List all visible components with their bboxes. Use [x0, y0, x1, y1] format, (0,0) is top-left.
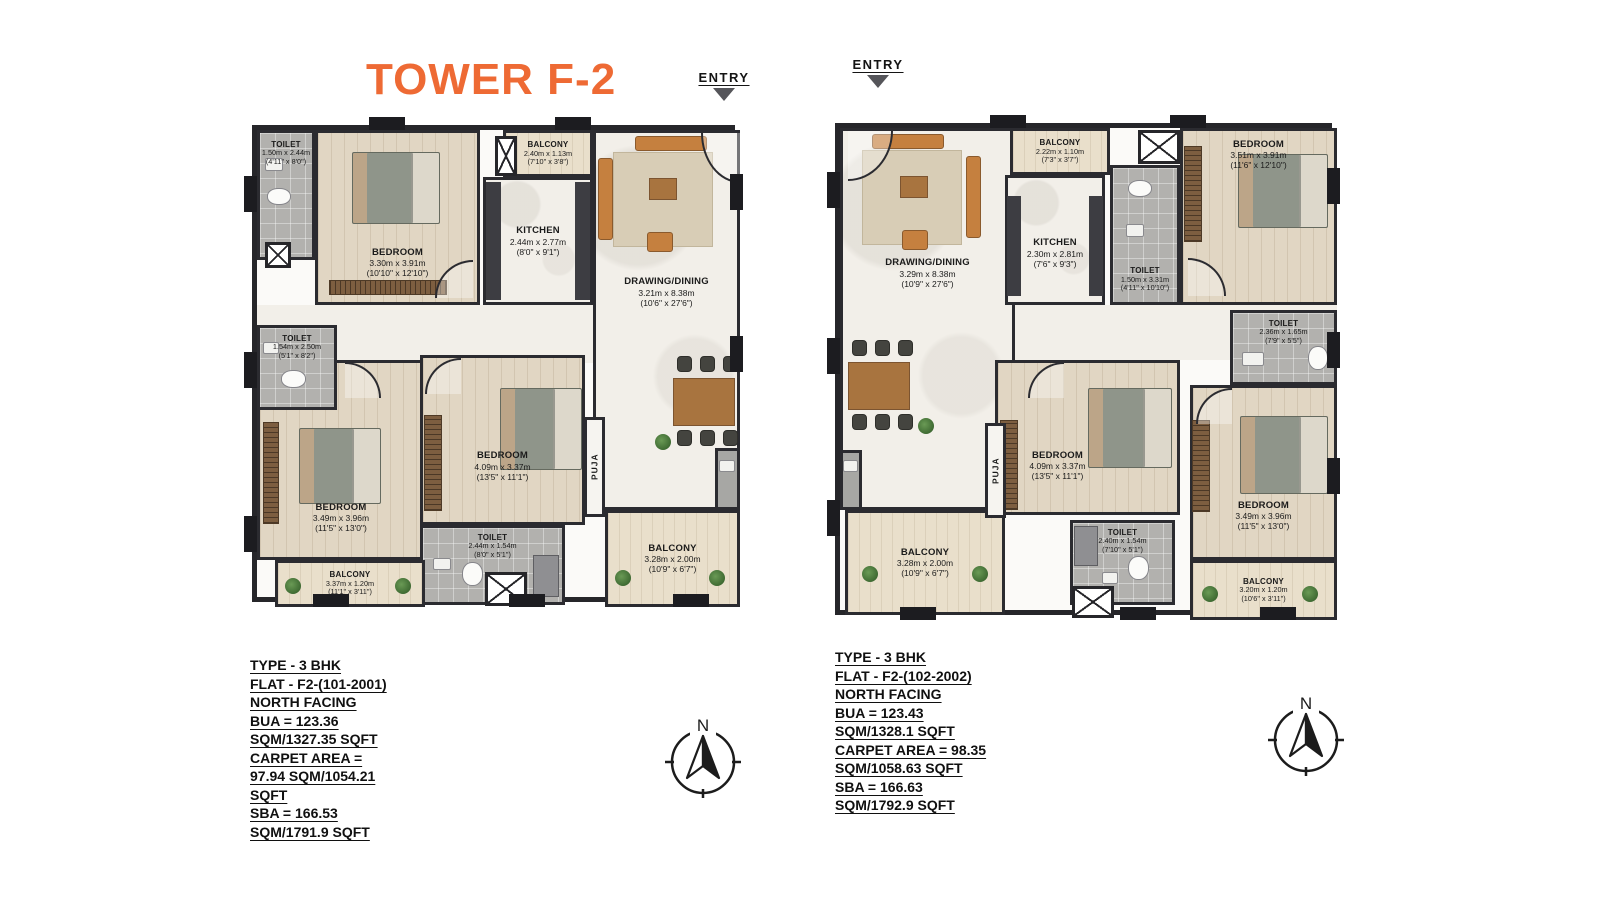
wall-stub	[313, 594, 349, 607]
room-dim-m: 3.49m x 3.96m	[1235, 511, 1291, 521]
compass-icon: N	[1266, 684, 1346, 783]
room-dim-m: 3.49m x 3.96m	[313, 513, 369, 523]
entry-arrow-icon	[713, 88, 735, 101]
room-drawing-dining: DRAWING/DINING 3.29m x 8.38m (10'9" x 27…	[840, 128, 1015, 510]
room-name: KITCHEN	[1033, 237, 1077, 248]
wall-stub	[673, 594, 709, 607]
compass-north-label: N	[1300, 694, 1312, 713]
room-balcony-1: BALCONY 2.40m x 1.13m (7'10" x 3'8")	[503, 130, 593, 177]
room-label: BALCONY 3.28m x 2.00m (10'9" x 6'7")	[848, 513, 1002, 612]
room-dim-ft: (10'9" x 6'7")	[901, 568, 949, 578]
room-kitchen: KITCHEN 2.44m x 2.77m (8'0" x 9'1")	[483, 177, 593, 305]
room-dim-m: 3.28m x 2.00m	[897, 558, 953, 568]
room-dim-ft: (8'0" x 9'1")	[517, 247, 560, 257]
room-name: DRAWING/DINING	[885, 257, 970, 268]
info-line: BUA = 123.43	[835, 706, 986, 721]
wall-stub	[730, 174, 743, 210]
info-line: TYPE - 3 BHK	[250, 658, 387, 673]
room-dim-m: 3.30m x 3.91m	[369, 258, 425, 268]
room-dim-m: 3.21m x 8.38m	[638, 288, 694, 298]
room-dim-m: 3.29m x 8.38m	[899, 269, 955, 279]
entry-label: ENTRY	[696, 70, 752, 85]
room-dim-ft: (7'3" x 3'7")	[1042, 156, 1079, 165]
wall-stub	[827, 500, 840, 536]
room-dim-ft: (10'6" x 27'6")	[640, 298, 692, 308]
room-name: BALCONY	[648, 543, 696, 554]
info-line: SQM/1328.1 SQFT	[835, 724, 986, 739]
unit-spec-left: TYPE - 3 BHK FLAT - F2-(101-2001) NORTH …	[250, 658, 387, 843]
room-dim-ft: (10'6" x 3'11")	[1241, 595, 1285, 604]
room-label: BEDROOM 3.51m x 3.91m (11'6" x 12'10")	[1183, 131, 1334, 302]
wall-stub	[1260, 607, 1296, 620]
info-line: NORTH FACING	[835, 687, 986, 702]
wall-stub	[555, 117, 591, 130]
room-dim-ft: (7'9" x 5'5")	[1265, 337, 1302, 346]
room-label: TOILET 2.40m x 1.54m (7'10" x 5'1")	[1073, 523, 1172, 602]
info-line: SBA = 166.63	[835, 780, 986, 795]
wall-stub	[369, 117, 405, 130]
room-dim-m: 2.30m x 2.81m	[1027, 249, 1083, 259]
room-dim-m: 4.09m x 3.37m	[474, 462, 530, 472]
room-dim-ft: (7'10" x 5'1")	[1102, 546, 1143, 555]
wall-stub	[244, 516, 257, 552]
room-dim-ft: (4'11" x 10'10")	[1121, 284, 1169, 293]
info-line: FLAT - F2-(102-2002)	[835, 669, 986, 684]
wall-stub	[990, 115, 1026, 128]
room-label: TOILET 2.44m x 1.54m (8'0" x 5'1")	[423, 528, 562, 602]
info-line: 97.94 SQM/1054.21	[250, 769, 387, 784]
room-label: BALCONY 3.28m x 2.00m (10'9" x 6'7")	[608, 513, 737, 604]
room-kitchen: KITCHEN 2.30m x 2.81m (7'6" x 9'3")	[1005, 175, 1105, 305]
room-label: TOILET 1.54m x 2.50m (5'1" x 8'2")	[260, 328, 334, 407]
room-label: BEDROOM 3.30m x 3.91m (10'10" x 12'10")	[318, 133, 477, 302]
info-line: NORTH FACING	[250, 695, 387, 710]
room-balcony-2: BALCONY 3.37m x 1.20m (11'1" x 3'11")	[275, 560, 425, 607]
info-line: SQM/1792.9 SQFT	[835, 798, 986, 813]
room-drawing-dining: DRAWING/DINING 3.21m x 8.38m (10'6" x 27…	[593, 130, 740, 510]
wall-stub	[1327, 168, 1340, 204]
wall-stub	[1327, 332, 1340, 368]
unit-spec-right: TYPE - 3 BHK FLAT - F2-(102-2002) NORTH …	[835, 650, 986, 817]
wall-stub	[827, 172, 840, 208]
room-toilet-3: TOILET 2.40m x 1.54m (7'10" x 5'1")	[1070, 520, 1175, 605]
info-line: SQM/1791.9 SQFT	[250, 825, 387, 840]
room-name: BEDROOM	[1233, 139, 1284, 150]
room-bedroom-1: BEDROOM 3.30m x 3.91m (10'10" x 12'10")	[315, 130, 480, 305]
room-name: BEDROOM	[315, 502, 366, 513]
room-dim-ft: (13'5" x 11'1")	[477, 472, 529, 482]
room-label: TOILET 1.50m x 3.31m (4'11" x 10'10")	[1113, 168, 1177, 302]
room-dim-ft: (11'6" x 12'10")	[1230, 160, 1286, 170]
room-dim-m: 3.28m x 2.00m	[644, 554, 700, 564]
room-name: BALCONY	[901, 547, 949, 558]
wall-stub	[244, 176, 257, 212]
floor-plan-right: DRAWING/DINING 3.29m x 8.38m (10'9" x 27…	[835, 123, 1332, 615]
wall-stub	[1170, 115, 1206, 128]
room-balcony-2: BALCONY 3.28m x 2.00m (10'9" x 6'7")	[845, 510, 1005, 615]
wall-stub	[900, 607, 936, 620]
info-line: SQM/1058.63 SQFT	[835, 761, 986, 776]
wall-stub	[509, 594, 545, 607]
room-label: KITCHEN 2.44m x 2.77m (8'0" x 9'1")	[486, 180, 590, 302]
info-line: SQM/1327.35 SQFT	[250, 732, 387, 747]
entry-label: ENTRY	[850, 57, 906, 72]
info-line: TYPE - 3 BHK	[835, 650, 986, 665]
info-line: SQFT	[250, 788, 387, 803]
room-dim-ft: (11'5" x 13'0")	[315, 523, 367, 533]
info-line: CARPET AREA = 98.35	[835, 743, 986, 758]
wall-stub	[1327, 458, 1340, 494]
room-bedroom-1: BEDROOM 3.51m x 3.91m (11'6" x 12'10")	[1180, 128, 1337, 305]
shaft-x-icon	[1138, 130, 1180, 164]
room-bedroom-2: BEDROOM 4.09m x 3.37m (13'5" x 11'1")	[995, 360, 1180, 515]
room-dim-ft: (11'5" x 13'0")	[1238, 521, 1290, 531]
room-label: BEDROOM 3.49m x 3.96m (11'5" x 13'0")	[1193, 388, 1334, 557]
room-label: BALCONY 3.37m x 1.20m (11'1" x 3'11")	[278, 563, 422, 604]
floor-plan-left: TOILET 1.50m x 2.44m (4'11" x 8'0") BEDR…	[252, 125, 735, 602]
room-name: BEDROOM	[1032, 450, 1083, 461]
room-toilet-3: TOILET 2.44m x 1.54m (8'0" x 5'1")	[420, 525, 565, 605]
room-bedroom-3: BEDROOM 3.49m x 3.96m (11'5" x 13'0")	[1190, 385, 1337, 560]
wall-stub	[1120, 607, 1156, 620]
room-balcony-3: BALCONY 3.28m x 2.00m (10'9" x 6'7")	[605, 510, 740, 607]
info-line: FLAT - F2-(101-2001)	[250, 677, 387, 692]
room-label: KITCHEN 2.30m x 2.81m (7'6" x 9'3")	[1008, 178, 1102, 302]
room-toilet-2: TOILET 1.54m x 2.50m (5'1" x 8'2")	[257, 325, 337, 410]
room-dim-ft: (10'10" x 12'10")	[367, 268, 429, 278]
entry-arrow-icon	[867, 75, 889, 88]
entry-marker-right: ENTRY	[850, 57, 906, 88]
room-label: TOILET 1.50m x 2.44m (4'11" x 8'0")	[260, 133, 312, 257]
room-name: DRAWING/DINING	[624, 276, 709, 287]
room-dim-m: 2.44m x 2.77m	[510, 237, 566, 247]
room-toilet-1: TOILET 1.50m x 2.44m (4'11" x 8'0")	[257, 130, 315, 260]
room-name: BEDROOM	[1238, 500, 1289, 511]
room-name: BEDROOM	[477, 450, 528, 461]
room-dim-ft: (5'1" x 8'2")	[279, 352, 316, 361]
room-dim-ft: (8'0" x 5'1")	[474, 551, 511, 560]
room-dim-ft: (13'5" x 11'1")	[1032, 471, 1084, 481]
room-dim-ft: (10'9" x 27'6")	[901, 279, 953, 289]
room-dim-ft: (10'9" x 6'7")	[649, 564, 697, 574]
room-dim-ft: (7'10" x 3'8")	[528, 158, 569, 167]
room-label: DRAWING/DINING 3.29m x 8.38m (10'9" x 27…	[843, 131, 1012, 507]
wall-stub	[730, 336, 743, 372]
info-line: BUA = 123.36	[250, 714, 387, 729]
room-label: BEDROOM 4.09m x 3.37m (13'5" x 11'1")	[998, 363, 1177, 512]
room-label: TOILET 2.36m x 1.65m (7'9" x 5'5")	[1233, 313, 1334, 382]
entry-marker-left: ENTRY	[696, 70, 752, 101]
page-title: TOWER F-2	[366, 55, 616, 105]
room-name: KITCHEN	[516, 225, 560, 236]
compass-icon: N	[663, 706, 743, 805]
room-label: BEDROOM 4.09m x 3.37m (13'5" x 11'1")	[423, 358, 582, 522]
wall-stub	[827, 338, 840, 374]
wall-stub	[244, 352, 257, 388]
room-dim-m: 4.09m x 3.37m	[1029, 461, 1085, 471]
room-toilet-2: TOILET 2.36m x 1.65m (7'9" x 5'5")	[1230, 310, 1337, 385]
room-dim-ft: (4'11" x 8'0")	[266, 158, 306, 167]
room-label: DRAWING/DINING 3.21m x 8.38m (10'6" x 27…	[596, 133, 737, 507]
info-line: CARPET AREA =	[250, 751, 387, 766]
room-bedroom-3: BEDROOM 4.09m x 3.37m (13'5" x 11'1")	[420, 355, 585, 525]
room-name: BEDROOM	[372, 247, 423, 258]
info-line: SBA = 166.53	[250, 806, 387, 821]
room-dim-m: 3.51m x 3.91m	[1230, 150, 1286, 160]
room-label: BALCONY 2.22m x 1.10m (7'3" x 3'7")	[1013, 131, 1107, 172]
room-dim-ft: (7'6" x 9'3")	[1034, 259, 1077, 269]
compass-north-label: N	[697, 716, 709, 735]
room-label: BALCONY 2.40m x 1.13m (7'10" x 3'8")	[506, 133, 590, 174]
room-toilet-1: TOILET 1.50m x 3.31m (4'11" x 10'10")	[1110, 165, 1180, 305]
room-balcony-1: BALCONY 2.22m x 1.10m (7'3" x 3'7")	[1010, 128, 1110, 175]
